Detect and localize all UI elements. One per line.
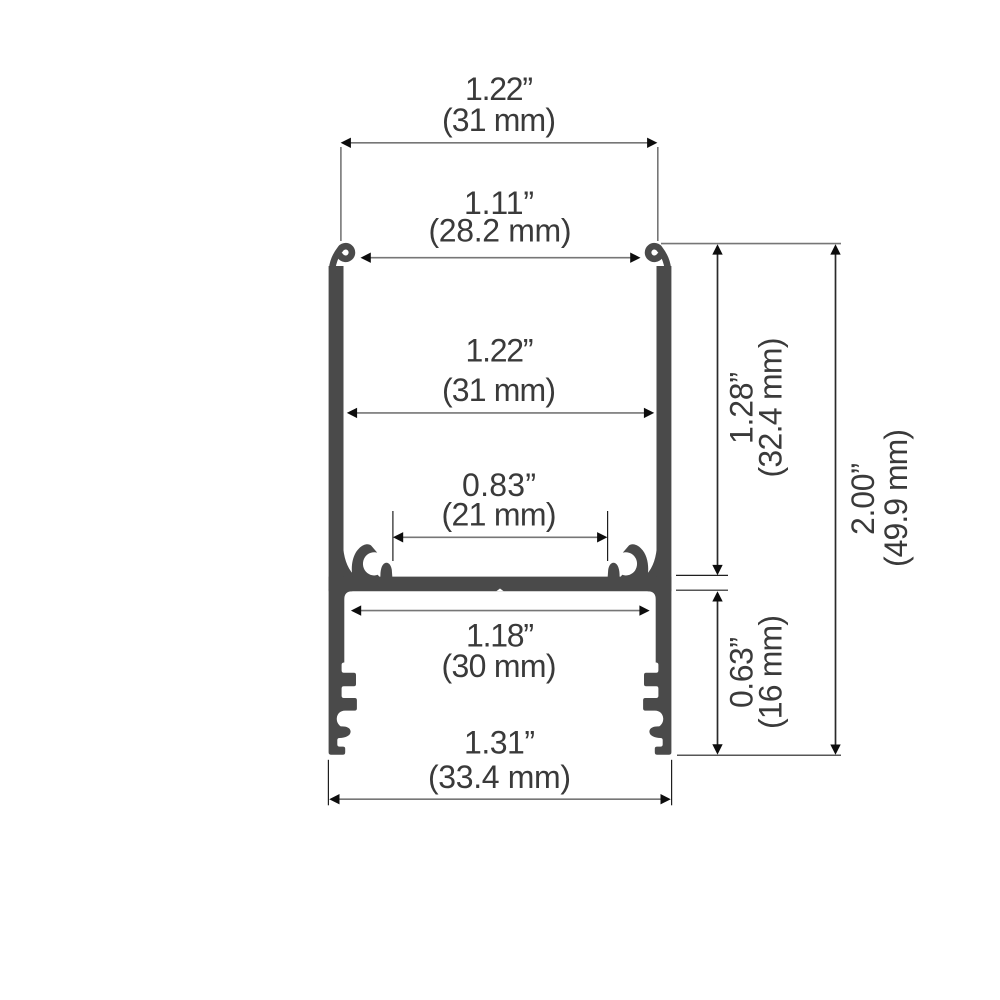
svg-text:1.22”: 1.22” (466, 332, 534, 368)
svg-text:(21 mm): (21 mm) (442, 497, 557, 533)
svg-text:(31 mm): (31 mm) (442, 102, 556, 138)
svg-text:(28.2 mm): (28.2 mm) (429, 213, 572, 249)
svg-text:(49.9 mm): (49.9 mm) (878, 429, 914, 567)
svg-text:(30 mm): (30 mm) (442, 648, 557, 684)
svg-text:(16 mm): (16 mm) (753, 615, 789, 729)
svg-text:(32.4 mm): (32.4 mm) (753, 338, 789, 478)
svg-text:2.00”: 2.00” (845, 463, 881, 535)
svg-text:(33.4 mm): (33.4 mm) (428, 759, 571, 795)
svg-text:(31 mm): (31 mm) (442, 372, 556, 408)
svg-text:1.31”: 1.31” (464, 725, 535, 761)
